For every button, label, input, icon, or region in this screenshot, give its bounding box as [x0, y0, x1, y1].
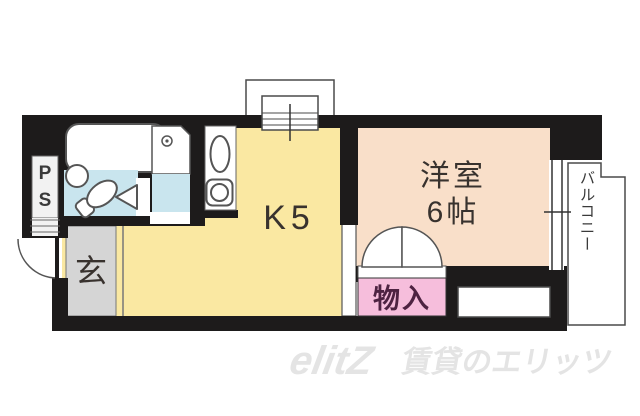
kitchen-counter [205, 126, 236, 210]
balcony-label: バルコニー [578, 170, 595, 253]
pipe-space-label-p: P [39, 163, 52, 184]
western-room-name: 洋室 [420, 160, 486, 193]
pipe-space-label-s: S [39, 190, 52, 211]
floorplan-image: P S [0, 0, 640, 416]
washroom-threshold [150, 212, 190, 224]
alcove-box [458, 287, 550, 317]
washroom [150, 126, 190, 224]
western-room-size: 6帖 [427, 196, 480, 229]
kitchen-label: K5 [263, 199, 315, 237]
kitchen-sink [211, 136, 230, 172]
kitchen-room-doorway [342, 222, 356, 316]
bathroom-doorway [136, 178, 150, 216]
watermark-logo: elitZ [286, 338, 377, 383]
watermark-text: 賃貸のエリッツ [398, 345, 615, 379]
storage-label: 物入 [373, 284, 431, 314]
washroom-floor [152, 174, 190, 212]
pipe-space: P S [30, 156, 60, 236]
entrance-label: 玄 [75, 253, 107, 289]
washing-machine-pan [152, 126, 190, 174]
washbasin [66, 165, 88, 187]
